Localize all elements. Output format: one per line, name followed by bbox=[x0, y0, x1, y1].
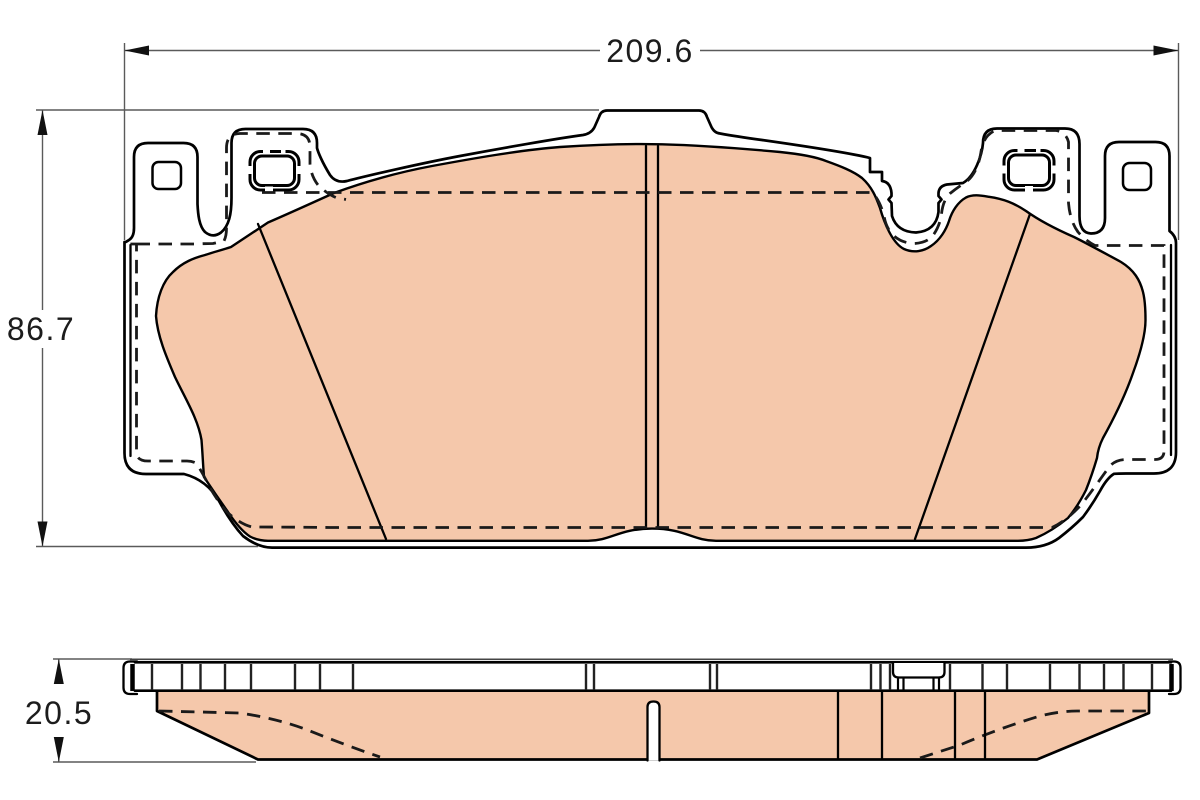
svg-text:20.5: 20.5 bbox=[25, 695, 93, 731]
svg-text:209.6: 209.6 bbox=[606, 33, 694, 69]
svg-text:86.7: 86.7 bbox=[7, 311, 75, 347]
